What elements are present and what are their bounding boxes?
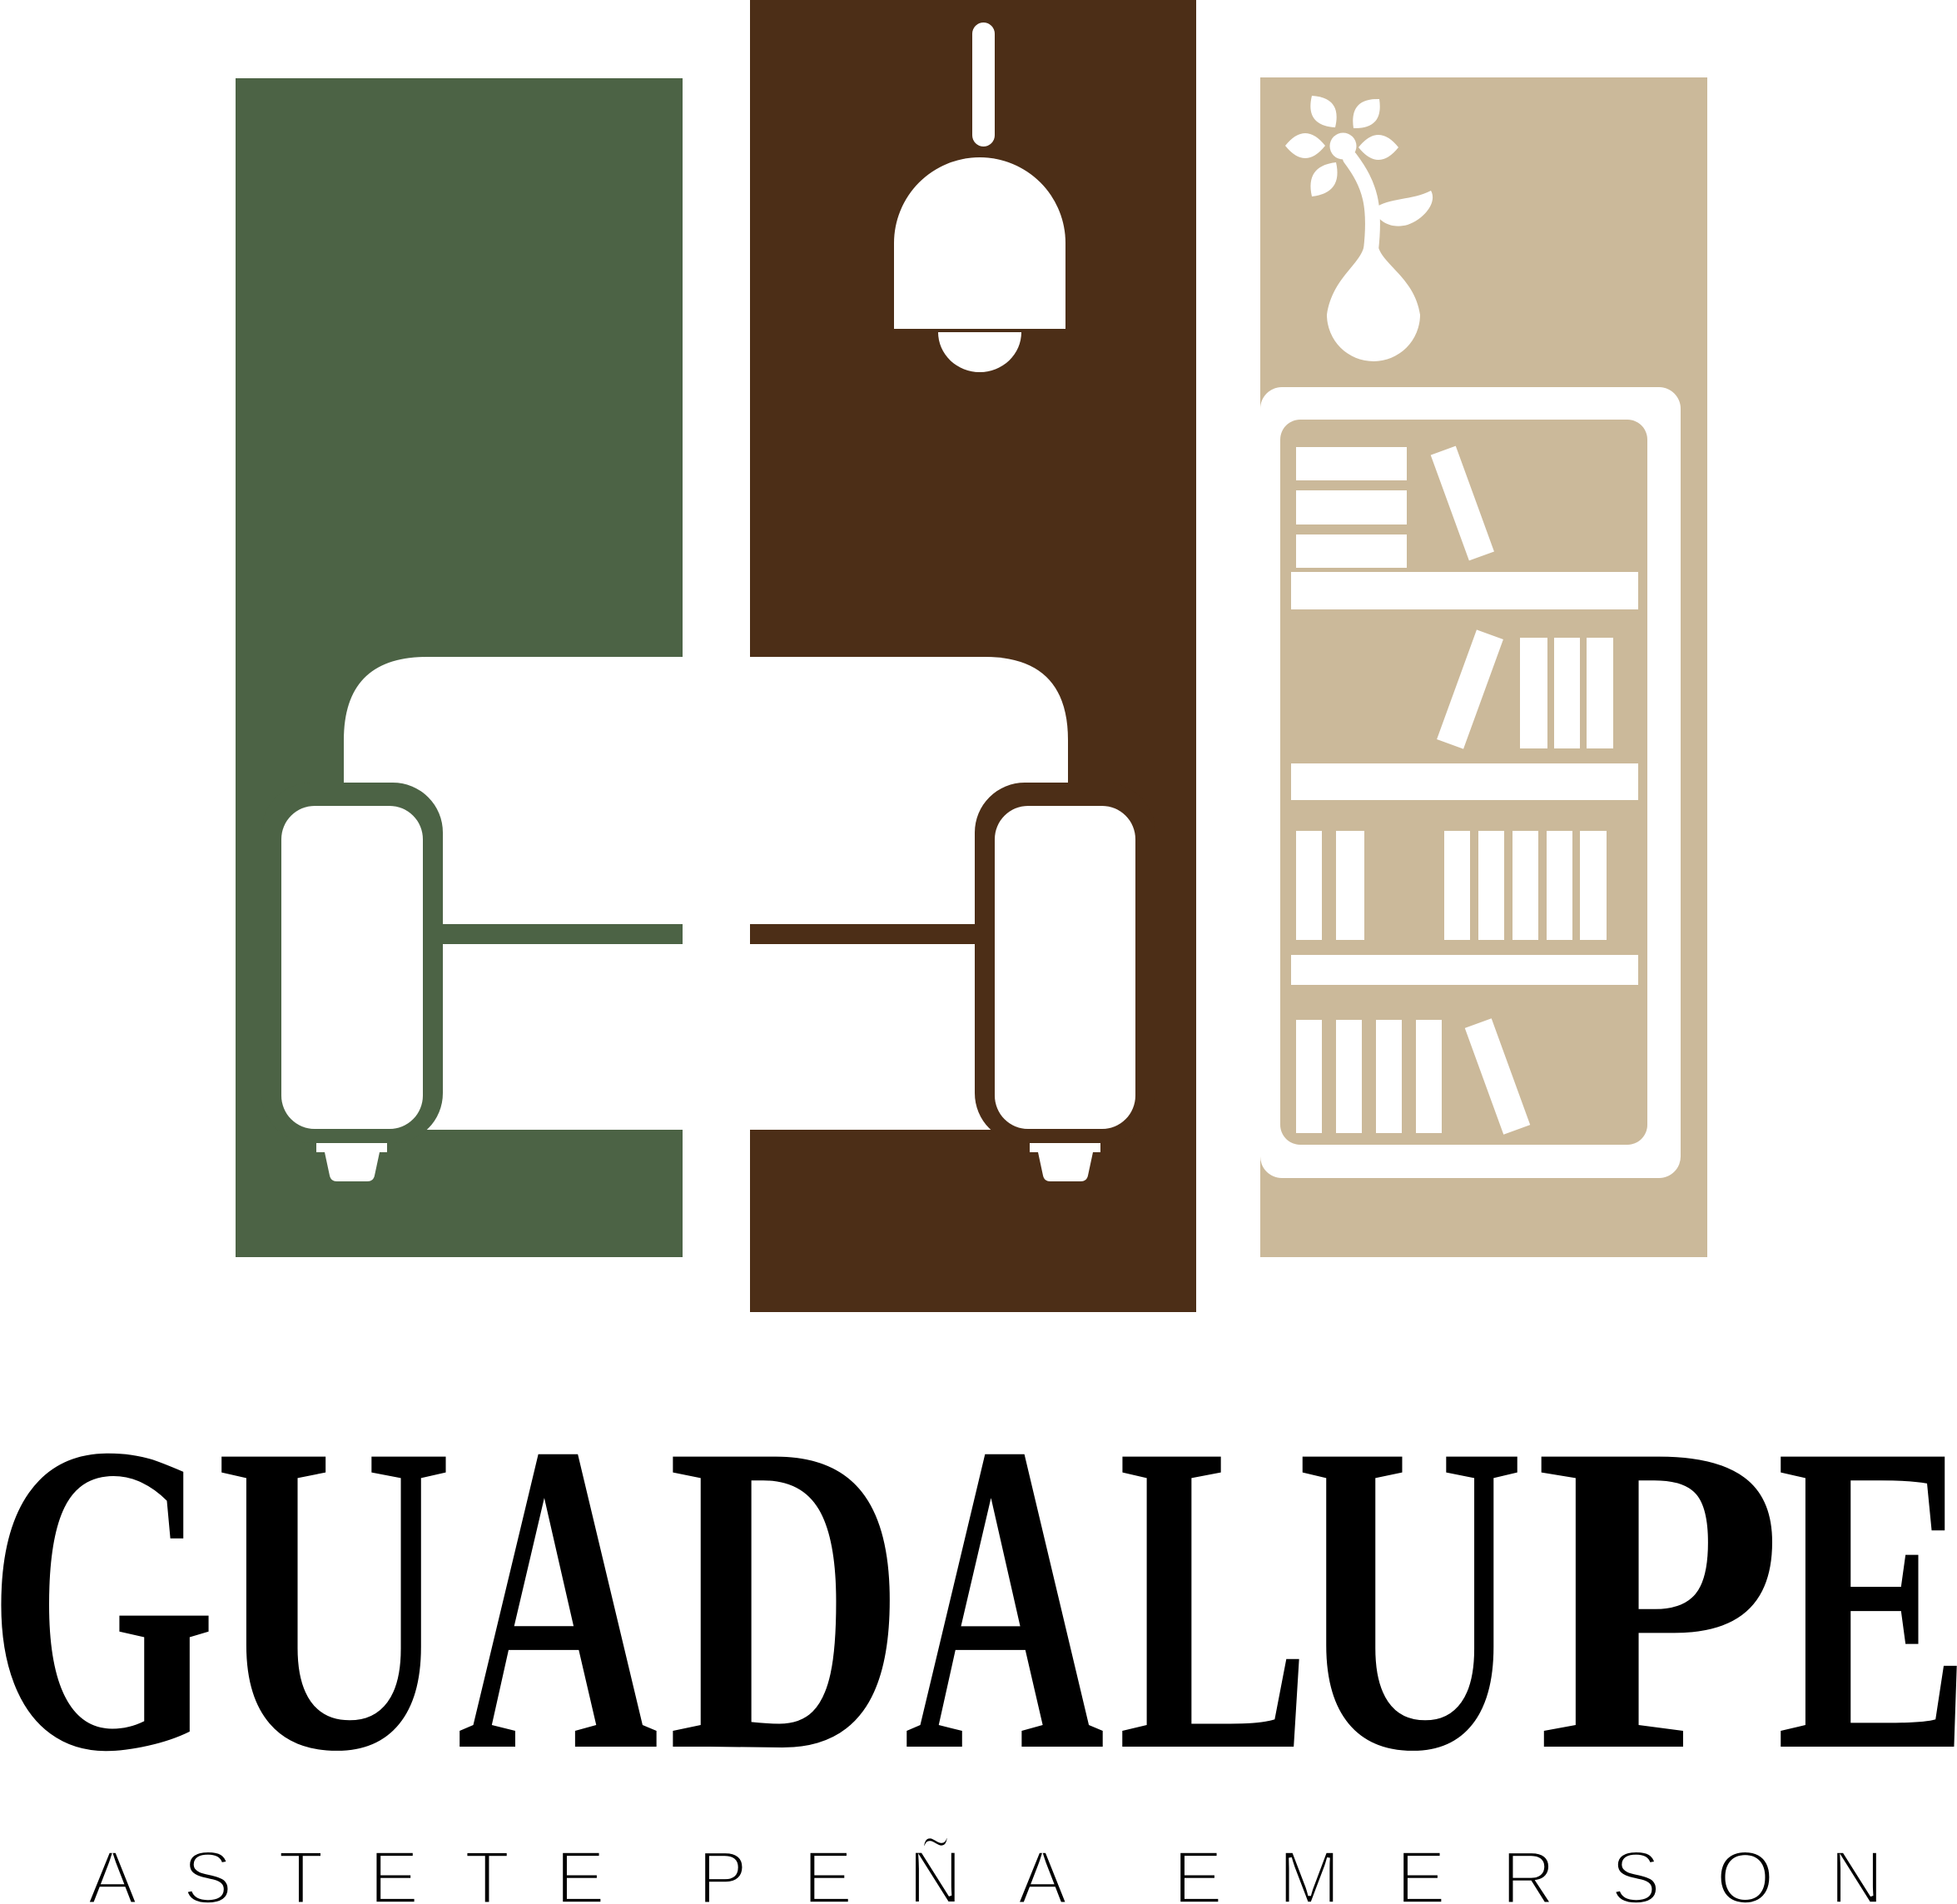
svg-text:EMERSON: EMERSON: [1173, 1837, 1940, 1904]
svg-text:E: E: [1776, 1352, 1957, 1842]
svg-text:ASTETE: ASTETE: [87, 1837, 650, 1904]
svg-text:A: A: [904, 1353, 1105, 1843]
svg-text:U: U: [1294, 1353, 1525, 1842]
svg-text:U: U: [213, 1352, 454, 1843]
svg-text:L: L: [1117, 1353, 1311, 1843]
svg-text:D: D: [667, 1352, 906, 1842]
svg-text:A: A: [457, 1353, 658, 1843]
svg-text:PEÑA: PEÑA: [698, 1837, 1123, 1904]
svg-text:P: P: [1534, 1352, 1784, 1843]
svg-text:G: G: [0, 1352, 216, 1842]
